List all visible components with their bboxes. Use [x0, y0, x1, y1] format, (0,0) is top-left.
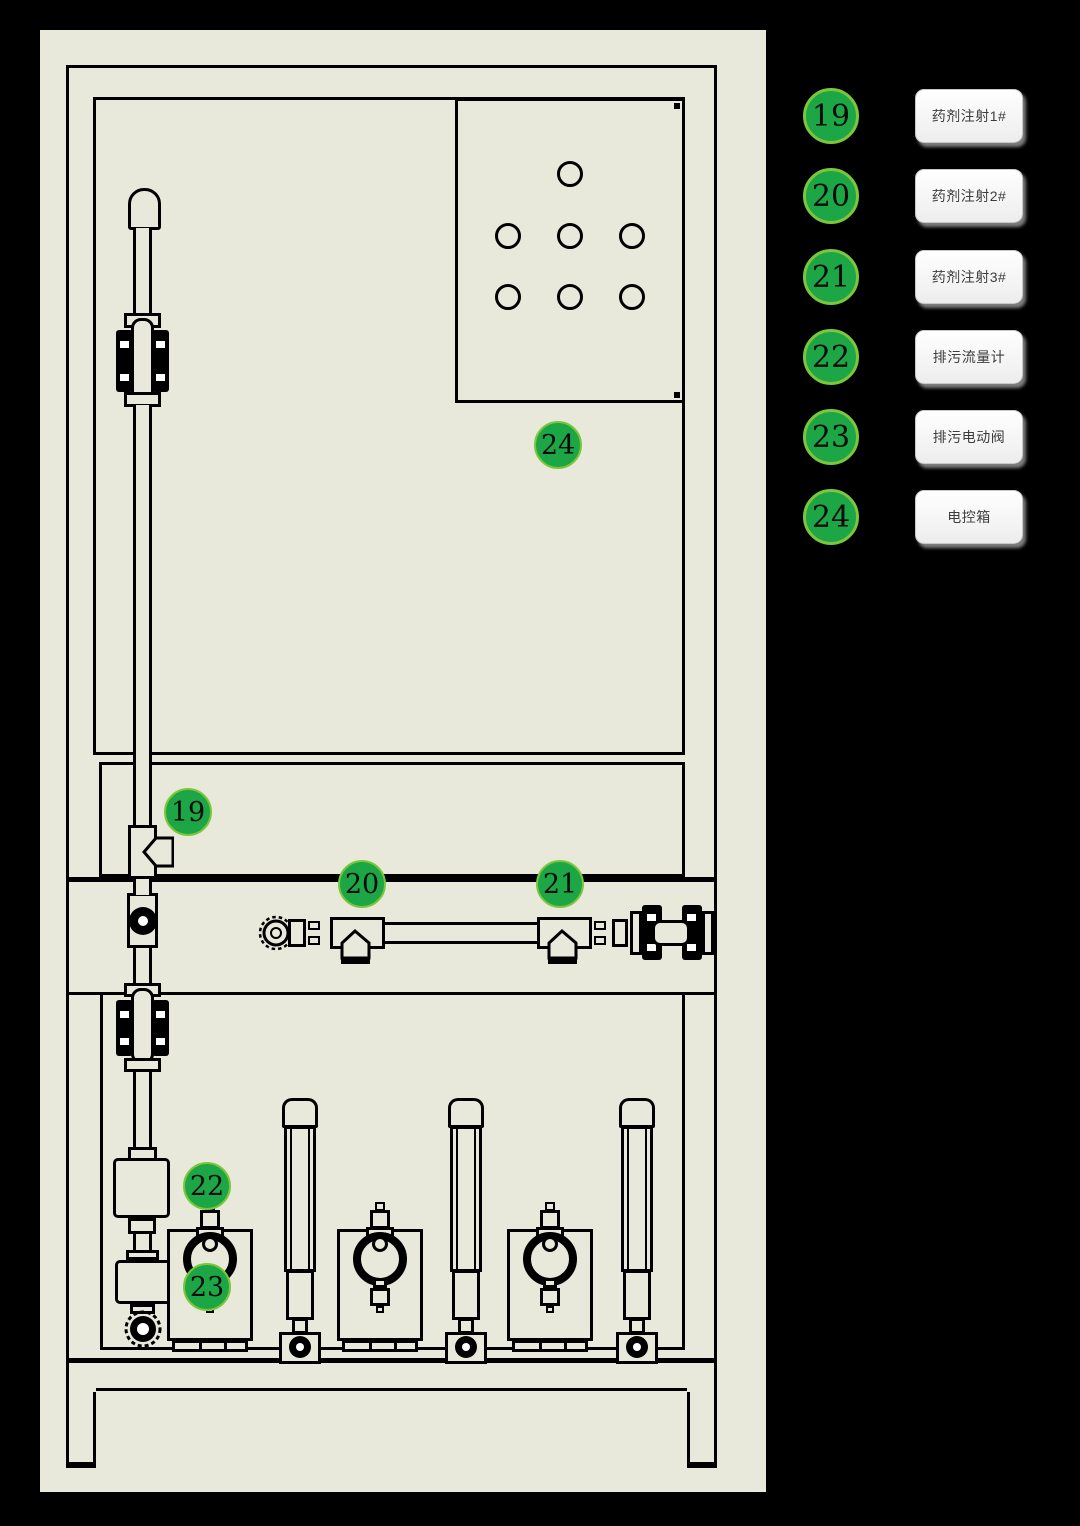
- control-box-hole: [557, 161, 583, 187]
- legend-row: 23排污电动阀: [803, 409, 1025, 465]
- legend-row: 20药剂注射2#: [803, 168, 1025, 224]
- legend-marker-19: 19: [803, 88, 859, 144]
- legend-button-label: 药剂注射1#: [932, 106, 1007, 126]
- legend-button-20[interactable]: 药剂注射2#: [915, 169, 1023, 223]
- callout-number: 20: [345, 869, 379, 900]
- manifold-tab: [594, 921, 606, 930]
- pipe-connector: [128, 1218, 156, 1234]
- calibration-column-inner: [456, 1128, 476, 1270]
- control-box-hole: [619, 223, 645, 249]
- cabinet-right-leg: [687, 1392, 717, 1468]
- calibration-column-lower: [286, 1270, 314, 1320]
- pump-suction-valve: [540, 1288, 560, 1306]
- injection-check-valve-icon: [340, 929, 371, 960]
- pump-suction-valve: [370, 1288, 390, 1306]
- crossbar-top-line: [66, 877, 717, 882]
- base-plate-divider: [224, 1343, 227, 1349]
- base-plate-divider: [564, 1343, 567, 1349]
- legend-button-23[interactable]: 排污电动阀: [915, 410, 1023, 464]
- union-flange: [702, 911, 714, 955]
- callout-number: 22: [190, 1171, 224, 1202]
- callout-marker-22: 22: [183, 1162, 231, 1210]
- callout-number: 23: [190, 1272, 224, 1303]
- manifold-pipe: [385, 922, 537, 944]
- vertical-pipe: [133, 1072, 152, 1149]
- union-nut: [152, 330, 169, 392]
- injection-check-valve-icon: [142, 836, 174, 868]
- union-flange: [630, 911, 642, 955]
- legend-marker-21: 21: [803, 249, 859, 305]
- calibration-column-inner: [627, 1128, 647, 1270]
- control-box-hole: [495, 284, 521, 310]
- legend-button-24[interactable]: 电控箱: [915, 490, 1023, 544]
- calibration-column-cap: [282, 1098, 318, 1128]
- base-beam-bottom-line: [96, 1388, 687, 1391]
- manifold-tab: [308, 921, 320, 930]
- control-box-hole: [619, 284, 645, 310]
- legend-button-label: 排污流量计: [933, 347, 1006, 367]
- canvas: 192021222324 19药剂注射1#20药剂注射2#21药剂注射3#22排…: [0, 0, 1080, 1526]
- vertical-pipe: [133, 228, 152, 317]
- pump-head-port: [542, 1236, 558, 1252]
- diaphragm-valve-body: [131, 318, 154, 402]
- legend-row: 24电控箱: [803, 489, 1025, 545]
- manifold-tab: [308, 936, 320, 945]
- electric-control-box: [455, 98, 685, 403]
- calibration-column-inner: [290, 1128, 310, 1270]
- control-box-hole: [557, 223, 583, 249]
- calibration-column-lower: [623, 1270, 651, 1320]
- calibration-column-cap: [448, 1098, 484, 1128]
- base-plate-divider: [539, 1343, 542, 1349]
- legend-number: 23: [812, 420, 850, 455]
- legend-marker-23: 23: [803, 409, 859, 465]
- legend-row: 19药剂注射1#: [803, 88, 1025, 144]
- legend-number: 20: [812, 179, 850, 214]
- equipment-drawing-panel: 192021222324: [40, 30, 766, 1492]
- pump-head-port: [202, 1236, 218, 1252]
- manifold-valve-body: [652, 920, 690, 946]
- legend-number: 24: [812, 500, 850, 535]
- callout-number: 21: [543, 869, 577, 900]
- legend-button-21[interactable]: 药剂注射3#: [915, 250, 1023, 304]
- callout-marker-19: 19: [164, 788, 212, 836]
- legend-button-label: 排污电动阀: [933, 427, 1006, 447]
- control-box-hole: [557, 284, 583, 310]
- legend-button-22[interactable]: 排污流量计: [915, 330, 1023, 384]
- manifold-tab: [594, 936, 606, 945]
- control-box-corner-mark: [674, 392, 680, 398]
- legend-button-19[interactable]: 药剂注射1#: [915, 89, 1023, 143]
- column-base-flange: [626, 1336, 648, 1358]
- check-valve-ring: [129, 907, 157, 935]
- legend-button-label: 药剂注射3#: [932, 267, 1007, 287]
- column-base-flange: [289, 1336, 311, 1358]
- legend-button-label: 药剂注射2#: [932, 186, 1007, 206]
- base-plate-divider: [394, 1343, 397, 1349]
- control-box-hole: [495, 223, 521, 249]
- legend-marker-24: 24: [803, 489, 859, 545]
- vertical-pipe: [133, 948, 152, 985]
- vertical-pipe: [133, 405, 152, 855]
- pump-suction-flange: [543, 1278, 557, 1288]
- legend-button-label: 电控箱: [947, 507, 991, 527]
- base-plate-divider: [199, 1343, 202, 1349]
- legend-number: 22: [812, 340, 850, 375]
- drain-outlet-flange-icon: [123, 1309, 163, 1349]
- pipe-top-cap: [128, 188, 161, 230]
- legend-number: 19: [812, 99, 850, 134]
- union-flange: [124, 1058, 161, 1072]
- legend-row: 22排污流量计: [803, 329, 1025, 385]
- legend-marker-22: 22: [803, 329, 859, 385]
- legend-marker-20: 20: [803, 168, 859, 224]
- calibration-column-cap: [619, 1098, 655, 1128]
- callout-number: 24: [541, 430, 575, 461]
- union-nut: [152, 1000, 169, 1056]
- pump-base-plate: [512, 1340, 588, 1352]
- cabinet-left-leg: [66, 1392, 96, 1468]
- pump-base-plate: [172, 1340, 248, 1352]
- pump-bottom-nub: [376, 1306, 384, 1313]
- pump-head-port: [372, 1236, 388, 1252]
- drain-flowmeter-body: [113, 1158, 170, 1218]
- control-box-corner-mark: [674, 103, 680, 109]
- drain-electric-valve-body: [115, 1260, 172, 1304]
- union-flange: [126, 1250, 159, 1260]
- base-plate-divider: [369, 1343, 372, 1349]
- legend-number: 21: [812, 260, 850, 295]
- calibration-column-lower: [452, 1270, 480, 1320]
- pump-bottom-nub: [546, 1306, 554, 1313]
- callout-marker-20: 20: [338, 860, 386, 908]
- callout-marker-24: 24: [534, 421, 582, 469]
- manifold-fitting: [612, 919, 628, 947]
- vertical-pipe: [133, 879, 152, 895]
- column-base-flange: [455, 1336, 477, 1358]
- manifold-fitting: [288, 919, 306, 947]
- legend-row: 21药剂注射3#: [803, 249, 1025, 305]
- flange-hole: [296, 1343, 304, 1351]
- callout-marker-23: 23: [183, 1263, 231, 1311]
- flange-hole: [462, 1343, 470, 1351]
- injection-check-valve-icon: [547, 929, 578, 960]
- pump-suction-flange: [373, 1278, 387, 1288]
- flange-hole: [633, 1343, 641, 1351]
- callout-number: 19: [171, 797, 205, 828]
- pump-base-plate: [342, 1340, 418, 1352]
- diaphragm-valve-body: [131, 988, 154, 1064]
- callout-marker-21: 21: [536, 860, 584, 908]
